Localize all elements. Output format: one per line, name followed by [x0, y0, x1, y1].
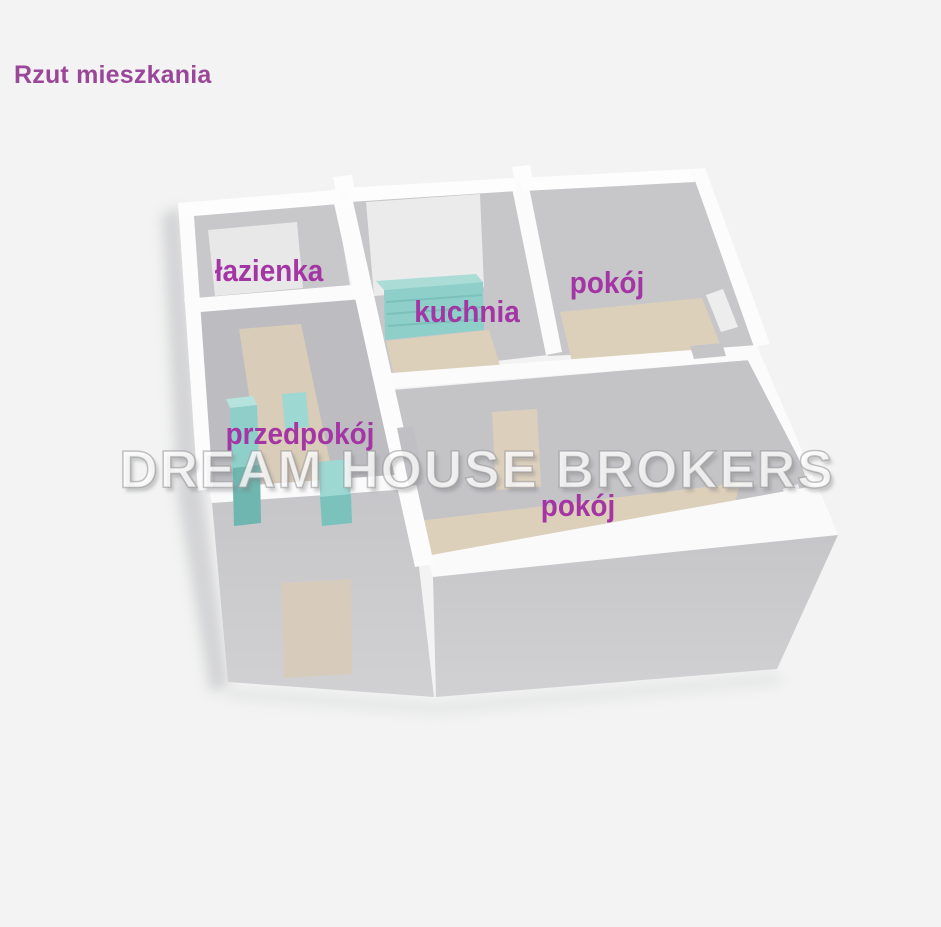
room-label-pokoj-gorny: pokój — [570, 265, 644, 301]
entrance-door — [281, 579, 352, 678]
page-background: Rzut mieszkania — [0, 0, 941, 927]
room-label-przedpokoj: przedpokój — [226, 416, 375, 452]
room-label-pokoj-dolny: pokój — [541, 488, 615, 524]
page-title: Rzut mieszkania — [14, 61, 212, 90]
room-label-lazienka: łazienka — [215, 253, 324, 289]
room-label-kuchnia: kuchnia — [414, 294, 519, 330]
